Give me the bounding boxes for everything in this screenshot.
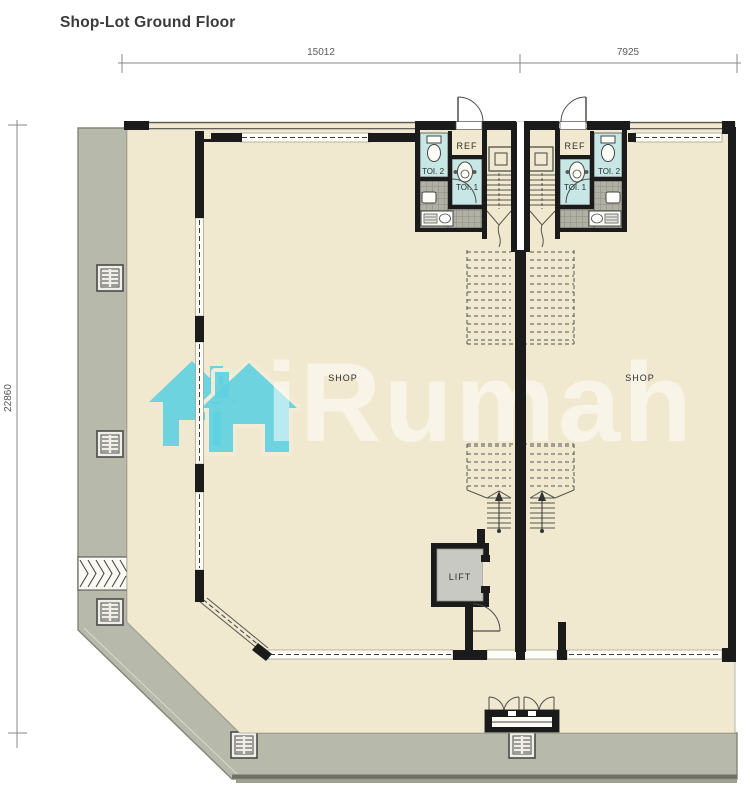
ref-right-label: REF xyxy=(565,141,586,151)
dimension-left: 22860 xyxy=(3,384,14,412)
toilet-fixture xyxy=(427,136,441,162)
floorplan-page: Shop-Lot Ground Floor 15012 7925 22860 xyxy=(0,0,750,795)
toi1-right-label: TOI. 1 xyxy=(564,183,587,192)
dimension-top-left: 15012 xyxy=(307,47,335,58)
counter-sink xyxy=(589,211,621,226)
page-title: Shop-Lot Ground Floor xyxy=(60,14,236,31)
toi2-right-label: TOI. 2 xyxy=(598,167,621,176)
basin xyxy=(422,192,436,203)
dimension-top-right: 7925 xyxy=(617,47,640,58)
lift-label: LIFT xyxy=(449,572,472,582)
shop-right-label: SHOP xyxy=(625,373,655,383)
counter-sink xyxy=(421,211,453,226)
toilet-fixture xyxy=(601,136,615,162)
toi1-left-label: TOI. 1 xyxy=(456,183,479,192)
ramp-hatch xyxy=(78,557,127,590)
curb-edge xyxy=(236,779,737,783)
ref-left-label: REF xyxy=(457,141,478,151)
shop-left-label: SHOP xyxy=(328,373,358,383)
floorplan-drawing: Shop-Lot Ground Floor 15012 7925 22860 xyxy=(0,0,750,795)
toi2-left-label: TOI. 2 xyxy=(422,167,445,176)
watermark-text: iRumah xyxy=(266,340,695,465)
basin xyxy=(606,192,620,203)
